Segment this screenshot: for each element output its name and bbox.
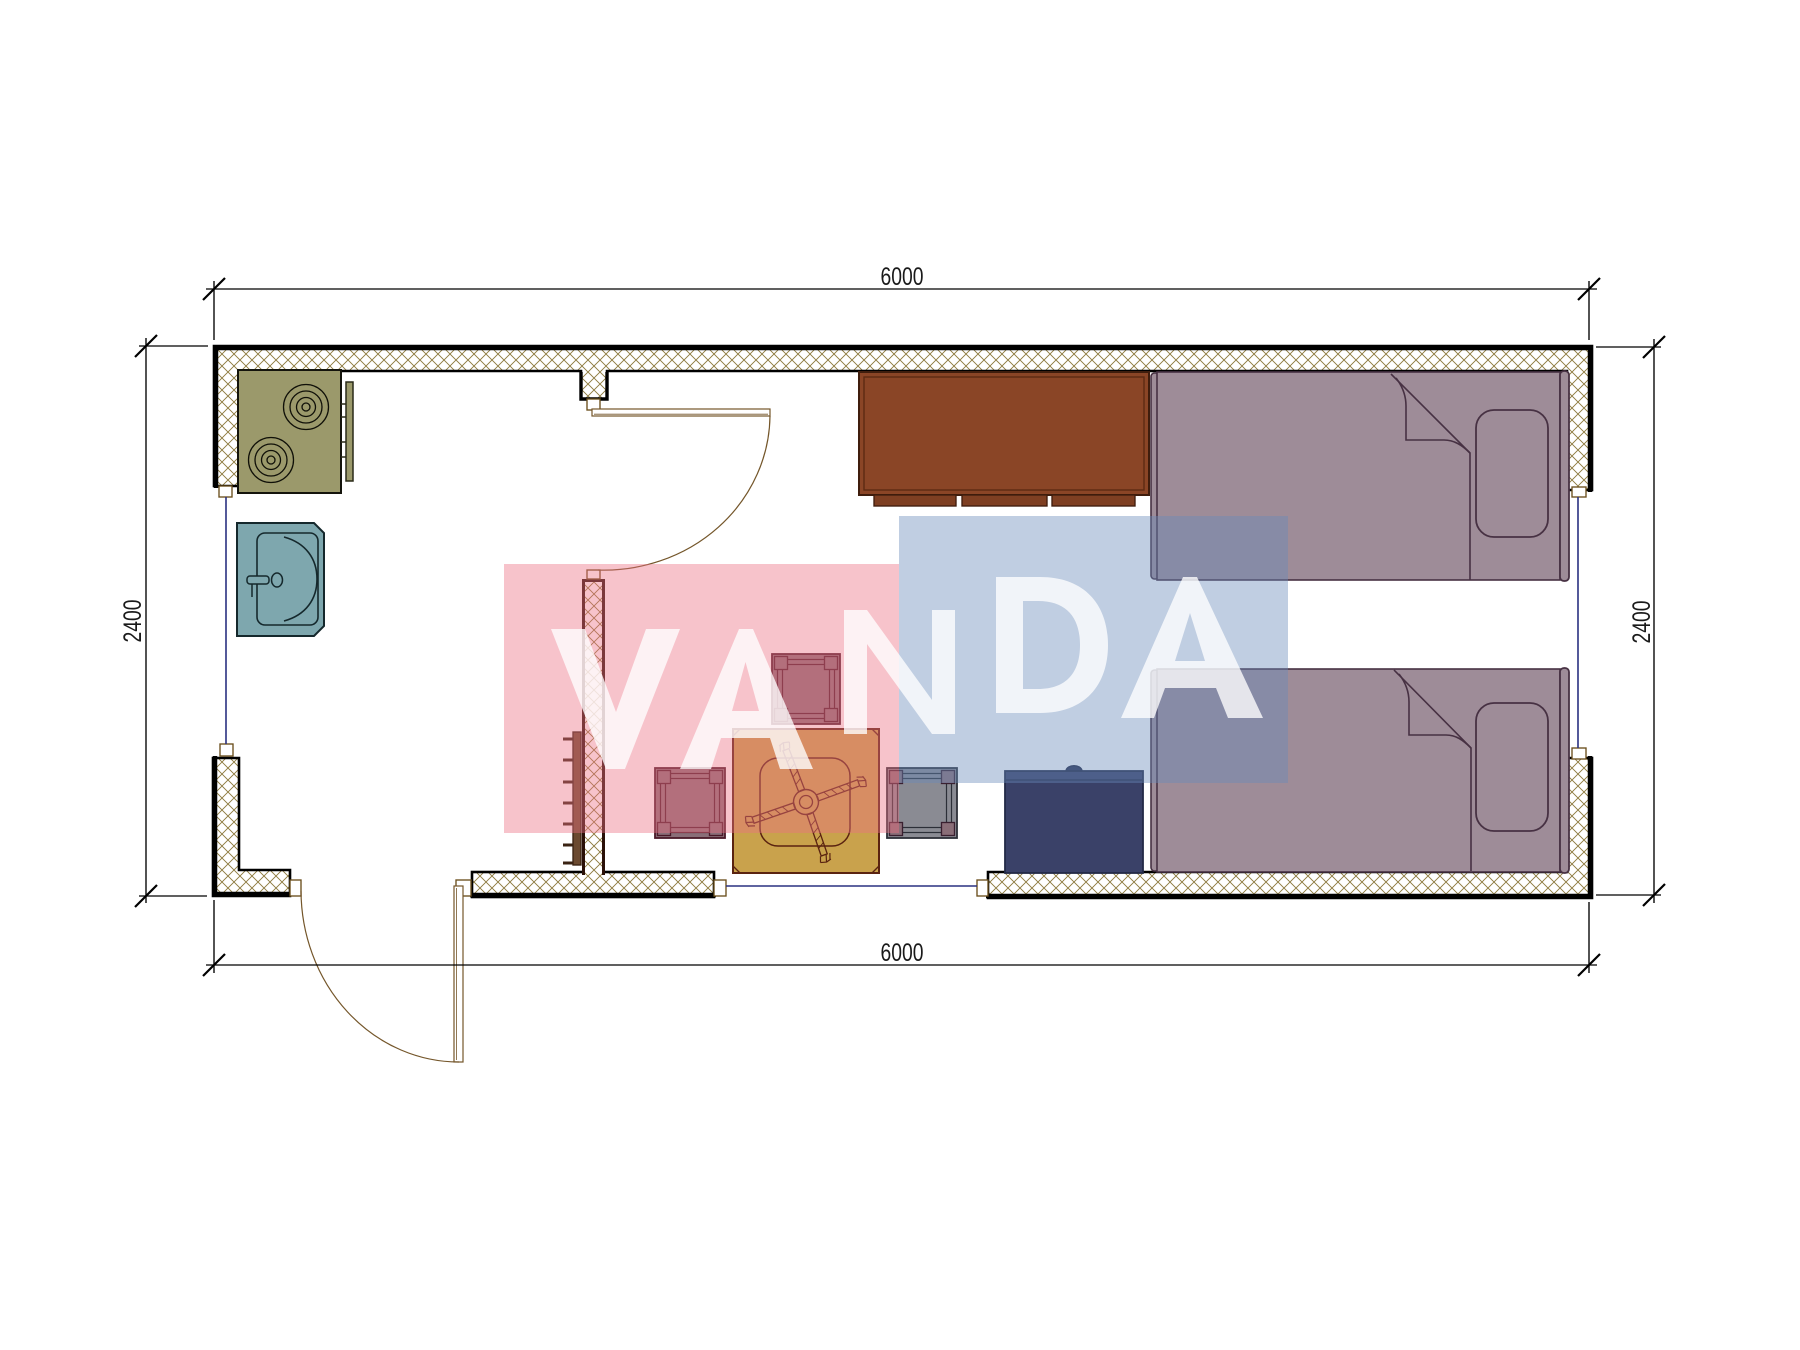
svg-text:6000: 6000	[881, 263, 924, 291]
svg-text:2400: 2400	[1628, 601, 1656, 644]
svg-text:2400: 2400	[119, 600, 147, 643]
svg-text:6000: 6000	[881, 939, 924, 967]
